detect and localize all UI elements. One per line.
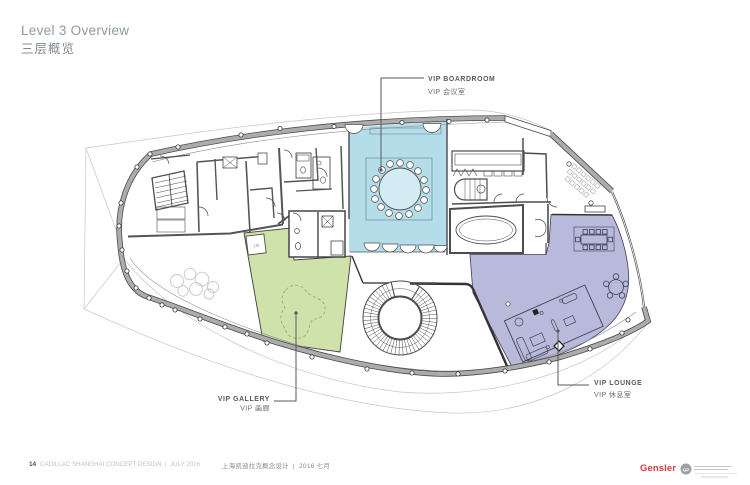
- svg-text:VIP LOUNGE: VIP LOUNGE: [594, 380, 642, 387]
- svg-text:GP: GP: [683, 468, 690, 473]
- svg-text:VIP 休息室: VIP 休息室: [594, 390, 631, 399]
- svg-text:VIP GALLERY: VIP GALLERY: [218, 396, 270, 403]
- svg-text:VIP 画廊: VIP 画廊: [240, 404, 270, 413]
- svg-text:VIP 会议室: VIP 会议室: [428, 87, 465, 96]
- svg-text:VIP BOARDROOM: VIP BOARDROOM: [428, 76, 495, 83]
